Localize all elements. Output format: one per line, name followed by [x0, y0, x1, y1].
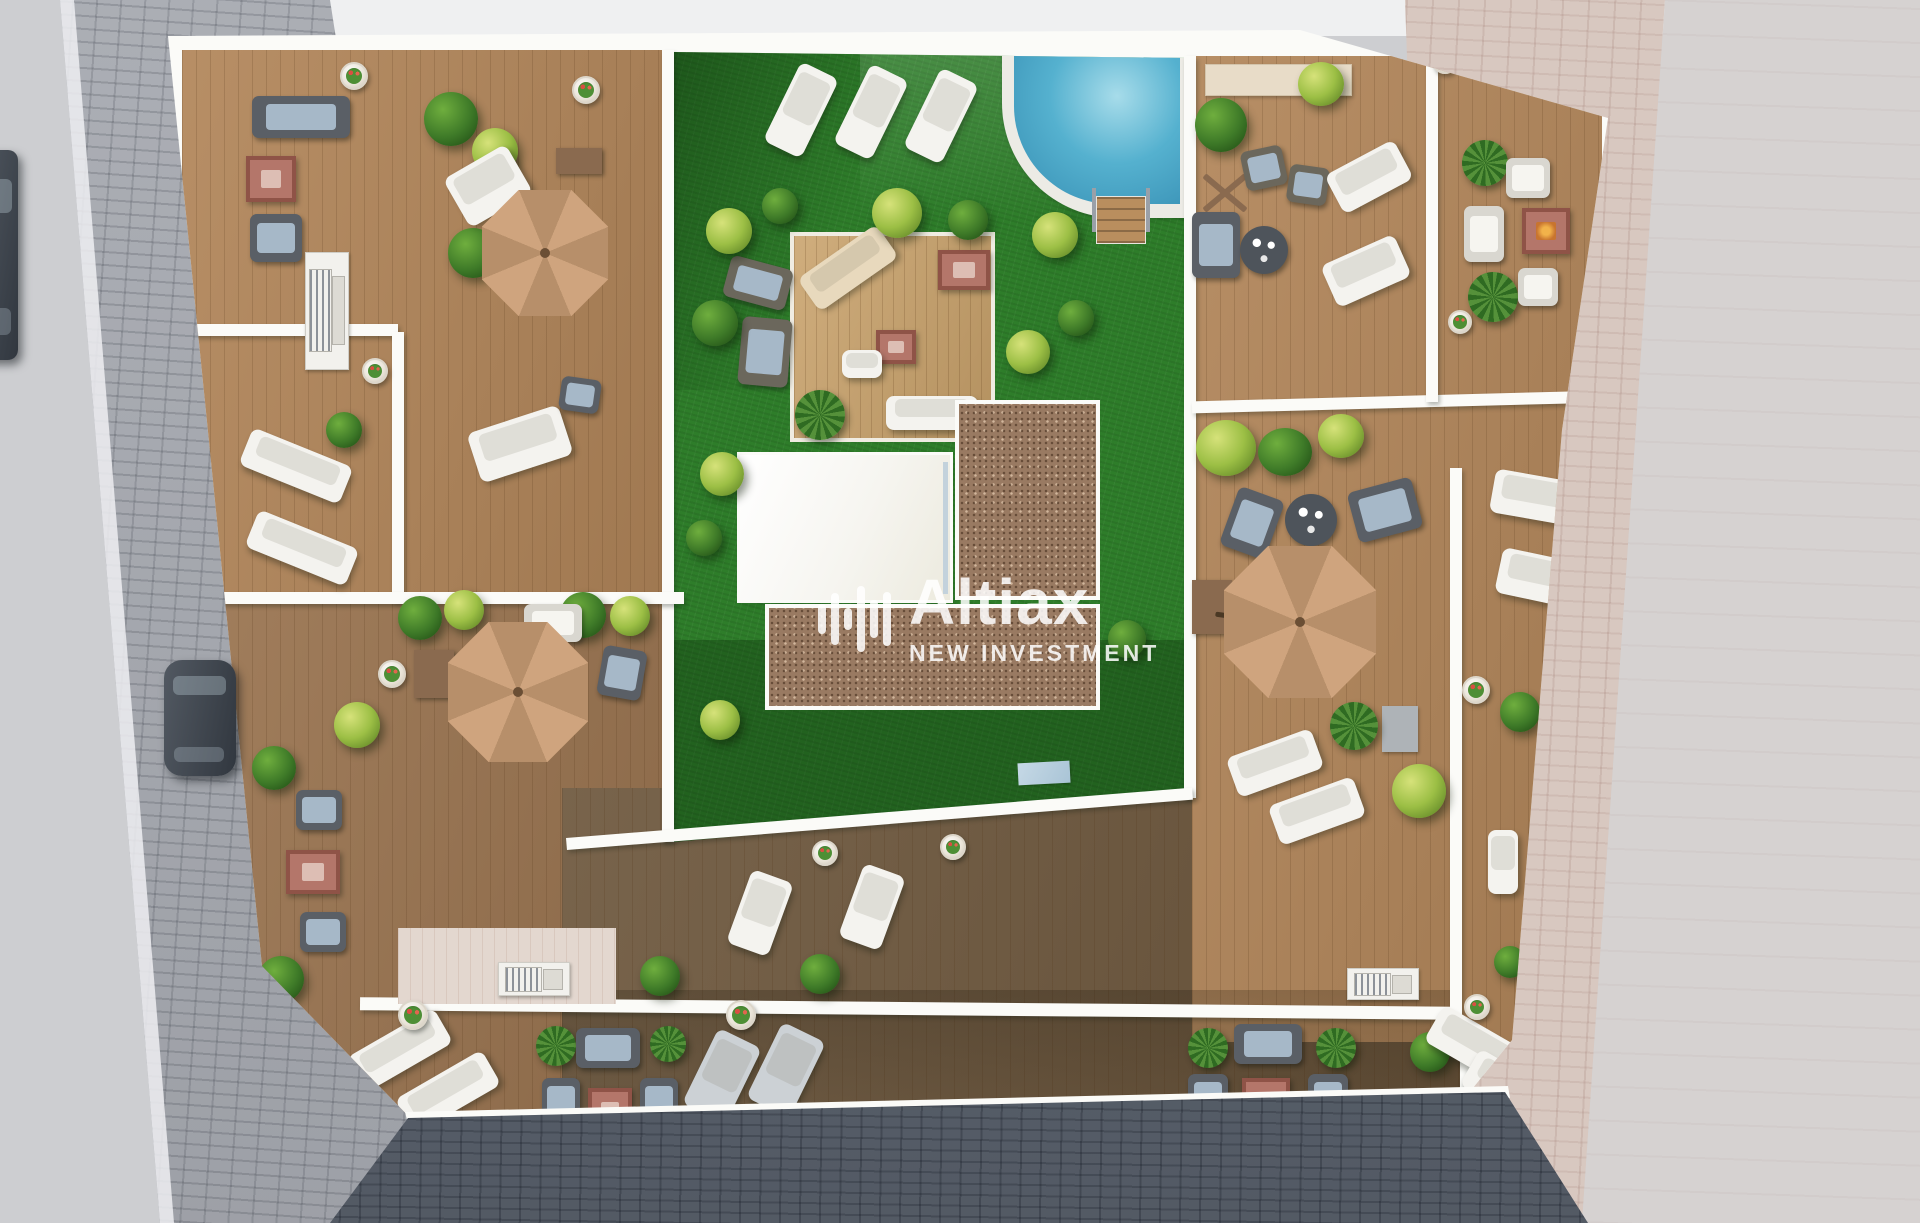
parasol — [482, 190, 608, 316]
altiax-logo-icon — [818, 580, 891, 658]
palm-plant — [795, 390, 845, 440]
outdoor-sofa — [250, 214, 302, 262]
palm-plant — [1316, 1028, 1356, 1068]
lounge-chair — [558, 375, 602, 414]
outdoor-kitchen — [305, 252, 349, 370]
lounge-chair — [1239, 144, 1288, 192]
bush — [686, 520, 722, 556]
watermark: Altiax NEW INVESTMENT — [818, 570, 1159, 667]
palm-plant — [536, 1026, 576, 1066]
bush — [1195, 98, 1247, 152]
bar-table — [556, 148, 602, 174]
parasol — [448, 622, 588, 762]
bush — [872, 188, 922, 238]
lounge-chair — [1506, 158, 1550, 198]
palm-plant — [1462, 140, 1508, 186]
outdoor-sofa — [1192, 212, 1240, 278]
palm-plant — [1188, 1028, 1228, 1068]
outdoor-sofa — [576, 1028, 640, 1068]
bush — [762, 188, 798, 224]
floor-mat — [1382, 706, 1418, 752]
bush — [1196, 420, 1256, 476]
bush — [700, 452, 744, 496]
bush — [1032, 212, 1078, 258]
flower-pot — [378, 660, 406, 688]
railing-wall — [392, 332, 404, 602]
outdoor-kitchen — [1347, 968, 1419, 1000]
roof-skylight — [1017, 761, 1070, 786]
bush — [334, 702, 380, 748]
railing-wall — [182, 324, 398, 336]
flower-pot — [572, 76, 600, 104]
bush — [700, 700, 740, 740]
flower-pot — [726, 1000, 756, 1030]
flower-pot — [362, 358, 388, 384]
platform-table — [876, 330, 916, 364]
outdoor-sofa — [1234, 1024, 1302, 1064]
bush — [444, 590, 484, 630]
fire-table — [1522, 208, 1570, 254]
round-table — [1285, 494, 1337, 546]
railing-wall — [1184, 56, 1196, 798]
outdoor-sofa — [252, 96, 350, 138]
lounge-chair — [1286, 163, 1331, 206]
flower-pot — [1448, 310, 1472, 334]
lounge-chair — [1464, 206, 1504, 262]
lounge-table — [246, 156, 296, 202]
sun-lounger — [1488, 830, 1518, 894]
railing-wall — [1450, 468, 1462, 1034]
round-table — [1240, 226, 1288, 274]
flower-pot — [398, 1000, 428, 1030]
watermark-text: Altiax NEW INVESTMENT — [909, 570, 1159, 667]
bush — [1318, 414, 1364, 458]
bush — [1392, 764, 1446, 818]
pool-steps — [1096, 196, 1146, 244]
flower-pot — [340, 62, 368, 90]
bush — [398, 596, 442, 640]
bush — [1006, 330, 1050, 374]
bush — [1058, 300, 1094, 336]
palm-plant — [1330, 702, 1378, 750]
bush — [1258, 428, 1312, 476]
lounge-chair — [1518, 268, 1558, 306]
lounge-chair — [296, 790, 342, 830]
bush — [610, 596, 650, 636]
garden-sofa — [737, 316, 793, 388]
brand-name: Altiax — [909, 570, 1159, 634]
bush — [326, 412, 362, 448]
bush — [640, 956, 680, 996]
flower-pot — [812, 840, 838, 866]
brand-tagline: NEW INVESTMENT — [909, 640, 1159, 667]
seat-cushion — [842, 350, 882, 378]
flower-pot — [940, 834, 966, 860]
bush — [1298, 62, 1344, 106]
bush — [252, 746, 296, 790]
bush — [948, 200, 988, 240]
palm-plant — [1468, 272, 1518, 322]
palm-plant — [650, 1026, 686, 1062]
bush — [692, 300, 738, 346]
railing-wall — [662, 50, 674, 842]
lounge-table — [286, 850, 340, 894]
bush — [424, 92, 478, 146]
lounge-chair — [596, 645, 648, 702]
flower-pot — [1464, 994, 1490, 1020]
pool-step-rail — [1146, 188, 1150, 232]
parked-car — [164, 660, 236, 776]
outdoor-kitchen — [498, 962, 570, 996]
lounge-chair — [300, 912, 346, 952]
aerial-rooftop-render: Altiax NEW INVESTMENT — [0, 0, 1920, 1223]
railing-wall — [1426, 58, 1438, 402]
platform-table — [938, 250, 990, 290]
bush — [800, 954, 840, 994]
bush — [706, 208, 752, 254]
cantilever-parasol — [1224, 546, 1376, 698]
parked-car-partial — [0, 150, 18, 360]
bush — [1500, 692, 1540, 732]
flower-pot — [1462, 676, 1490, 704]
